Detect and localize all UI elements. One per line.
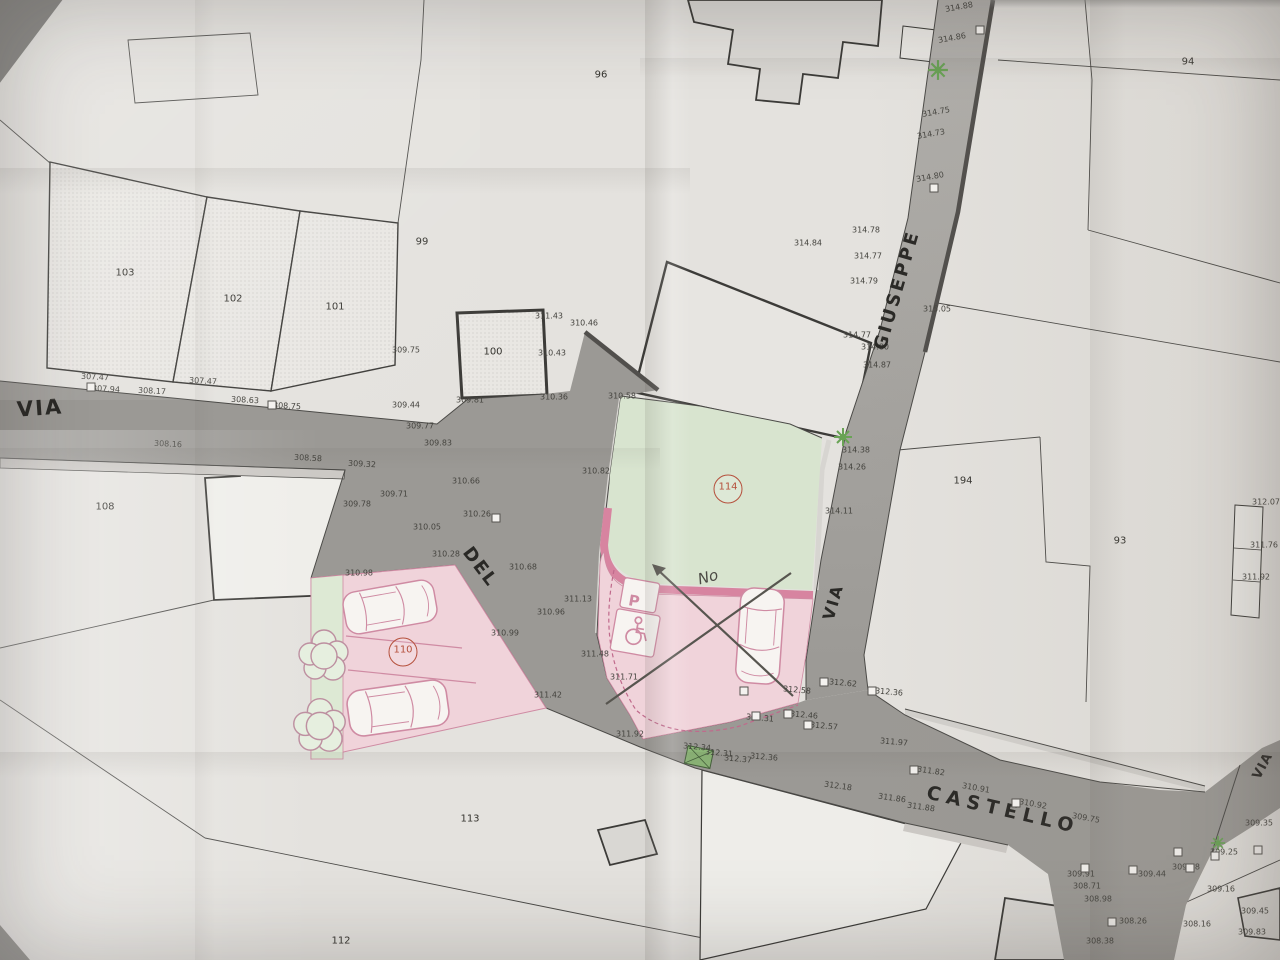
building-zigzag-top: [688, 0, 882, 104]
building-step-strip: [1231, 505, 1263, 618]
site-plan-drawing: [0, 0, 1280, 960]
building-diamond: [598, 820, 657, 865]
site-plan-photo: 307.47307.47307.94308.17308.63308.75308.…: [0, 0, 1280, 960]
car-icon-3: [735, 587, 785, 685]
area-114-green: [604, 396, 822, 595]
parcel-100: [457, 310, 547, 398]
building-corner: [1238, 888, 1280, 940]
